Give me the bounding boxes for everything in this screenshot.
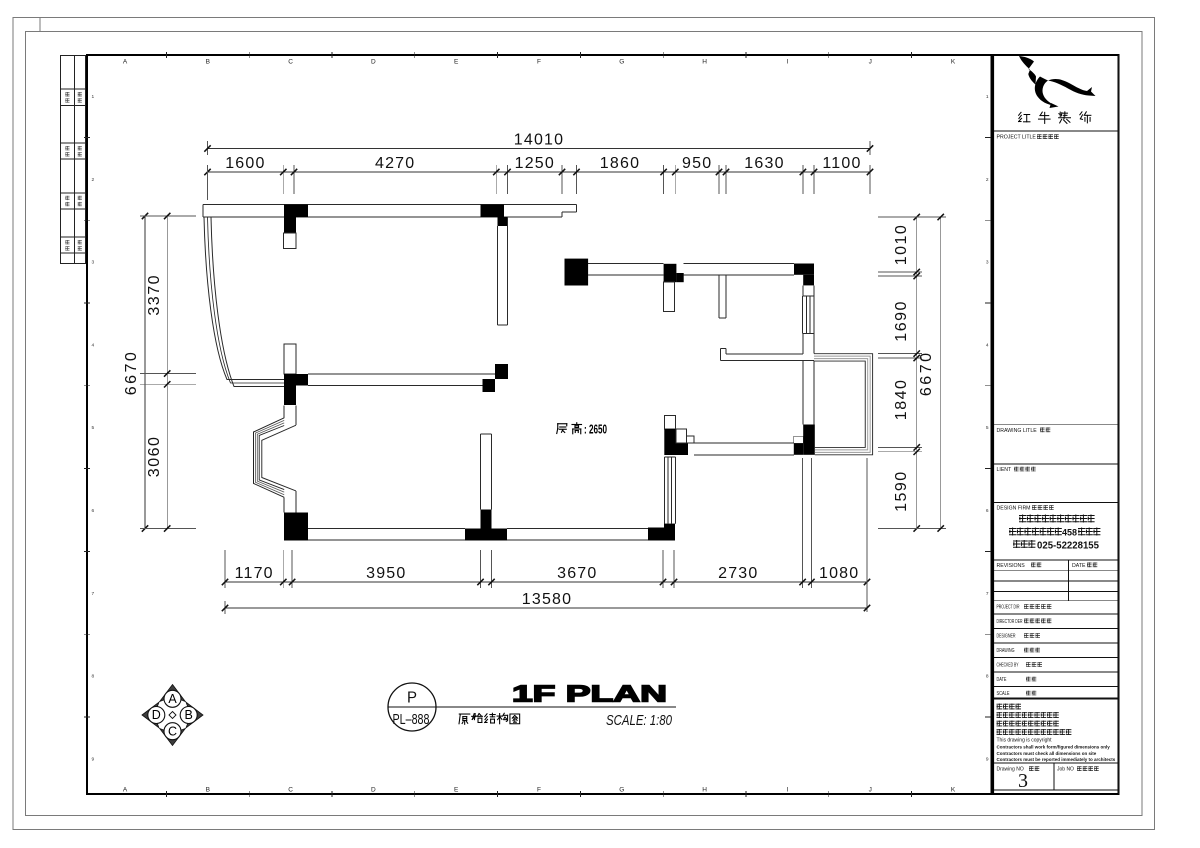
svg-text:SCALE: SCALE: [997, 691, 1011, 697]
svg-text:F: F: [537, 59, 541, 66]
svg-text:1860: 1860: [600, 155, 640, 172]
svg-text:1010: 1010: [893, 224, 910, 266]
svg-text:2730: 2730: [718, 565, 758, 582]
svg-text:G: G: [619, 59, 624, 66]
svg-text:950: 950: [682, 155, 712, 172]
svg-text:E: E: [454, 59, 459, 66]
svg-text:1: 1: [92, 94, 95, 100]
svg-text:1: 1: [986, 94, 989, 100]
svg-text:K: K: [951, 59, 956, 66]
svg-text:J: J: [869, 787, 872, 794]
svg-text:: 2650: : 2650: [584, 423, 607, 437]
svg-text:458: 458: [1062, 527, 1077, 537]
svg-text:7: 7: [92, 591, 95, 597]
svg-text:Contractors must be reported i: Contractors must be reported immediately…: [997, 757, 1116, 762]
svg-text:C: C: [288, 59, 293, 66]
svg-text:A: A: [168, 692, 177, 706]
svg-text:8: 8: [92, 674, 95, 680]
svg-text:1600: 1600: [225, 155, 265, 172]
svg-text:H: H: [702, 59, 707, 66]
svg-text:Contractors must check all dim: Contractors must check all dimensions on…: [997, 751, 1097, 756]
svg-text:025-52228155: 025-52228155: [1037, 540, 1099, 552]
svg-text:1630: 1630: [744, 155, 784, 172]
svg-text:1590: 1590: [893, 470, 910, 512]
svg-text:1100: 1100: [822, 155, 861, 172]
svg-text:DRAWING: DRAWING: [997, 648, 1015, 654]
svg-text:5: 5: [986, 425, 989, 431]
svg-text:B: B: [185, 708, 193, 722]
svg-text:8: 8: [986, 674, 989, 680]
svg-text:DATE: DATE: [997, 677, 1008, 683]
svg-text:Job NO: Job NO: [1057, 767, 1074, 773]
svg-text:7: 7: [986, 591, 989, 597]
svg-text:DIRECTOR DER: DIRECTOR DER: [997, 619, 1023, 625]
svg-text:9: 9: [986, 756, 989, 762]
svg-text:4270: 4270: [375, 155, 415, 172]
svg-text:B: B: [206, 787, 210, 794]
svg-text:3: 3: [986, 260, 989, 266]
svg-text:1250: 1250: [515, 155, 555, 172]
svg-text:3: 3: [92, 260, 95, 266]
svg-text:6: 6: [92, 508, 95, 514]
svg-text:C: C: [168, 724, 177, 738]
svg-text:9: 9: [92, 756, 95, 762]
svg-text:1080: 1080: [819, 565, 859, 582]
svg-text:3370: 3370: [146, 274, 163, 316]
svg-text:5: 5: [92, 425, 95, 431]
svg-text:SCALE: 1:80: SCALE: 1:80: [606, 712, 673, 729]
svg-text:2: 2: [92, 177, 95, 183]
svg-text:1690: 1690: [893, 300, 910, 342]
svg-text:A: A: [123, 787, 128, 794]
svg-text:6: 6: [986, 508, 989, 514]
svg-text:DRAWING LITLE: DRAWING LITLE: [997, 428, 1038, 434]
svg-text:PL–888: PL–888: [393, 711, 430, 728]
svg-text:D: D: [371, 59, 376, 66]
svg-text:3060: 3060: [146, 436, 163, 478]
svg-text:B: B: [206, 59, 210, 66]
svg-text:3670: 3670: [557, 565, 597, 582]
svg-text:CHECKED BY: CHECKED BY: [997, 663, 1019, 669]
svg-text:A: A: [123, 59, 128, 66]
svg-text:4: 4: [986, 342, 989, 348]
svg-text:J: J: [869, 59, 872, 66]
svg-text:H: H: [702, 787, 707, 794]
svg-text:1840: 1840: [893, 379, 910, 421]
svg-text:3950: 3950: [366, 565, 406, 582]
svg-text:PROJECT LITLE: PROJECT LITLE: [997, 135, 1037, 141]
svg-text:K: K: [951, 787, 956, 794]
svg-text:I: I: [786, 59, 788, 66]
svg-text:PROJECT DIR: PROJECT DIR: [997, 605, 1020, 611]
svg-text:2: 2: [986, 177, 989, 183]
svg-text:4: 4: [92, 342, 95, 348]
svg-text:D: D: [152, 708, 161, 722]
svg-text:P: P: [407, 690, 417, 707]
svg-text:1170: 1170: [235, 565, 274, 582]
svg-text:6670: 6670: [123, 350, 140, 396]
svg-text:LIENT: LIENT: [997, 467, 1013, 473]
svg-text:3: 3: [1018, 770, 1028, 792]
svg-text:14010: 14010: [514, 132, 565, 149]
svg-text:F: F: [537, 787, 541, 794]
svg-text:1F PLAN: 1F PLAN: [512, 681, 667, 707]
svg-text:6670: 6670: [918, 351, 935, 397]
svg-text:C: C: [288, 787, 293, 794]
svg-text:Contractors shall work form/fi: Contractors shall work form/figured dime…: [997, 745, 1111, 750]
svg-text:REVISIONS: REVISIONS: [997, 563, 1026, 569]
svg-text:E: E: [454, 787, 459, 794]
svg-text:13580: 13580: [522, 591, 573, 608]
svg-text:G: G: [619, 787, 624, 794]
svg-text:I: I: [786, 787, 788, 794]
svg-text:DESIGN FIRM: DESIGN FIRM: [997, 506, 1031, 512]
svg-text:DATE: DATE: [1072, 563, 1086, 569]
svg-text:This drawing is copyright: This drawing is copyright: [997, 738, 1053, 744]
svg-text:D: D: [371, 787, 376, 794]
svg-text:DESIGNER: DESIGNER: [997, 634, 1016, 640]
